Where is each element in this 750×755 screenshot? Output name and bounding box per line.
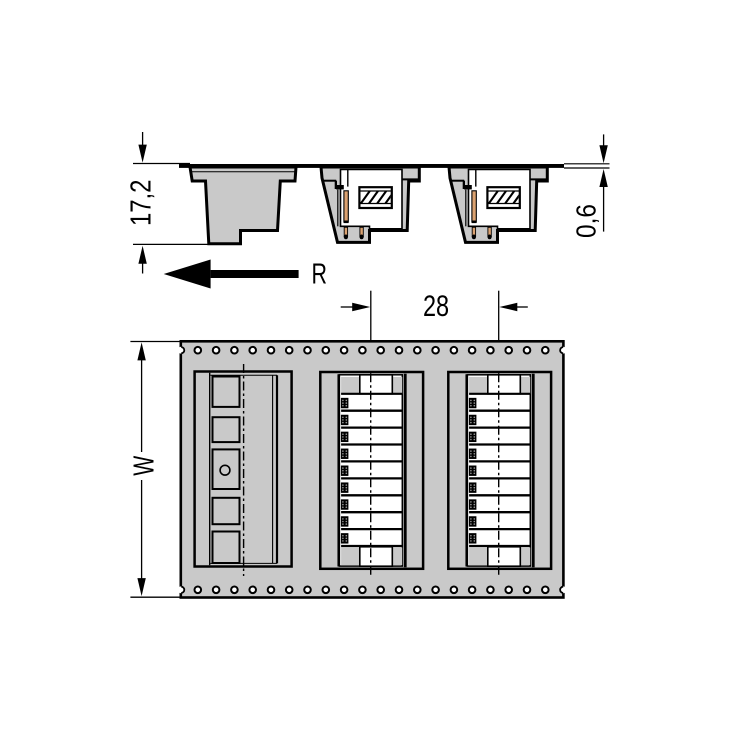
svg-text:R: R bbox=[311, 259, 327, 291]
svg-text:28: 28 bbox=[423, 290, 449, 323]
svg-text:17,2: 17,2 bbox=[126, 180, 158, 227]
svg-text:0,6: 0,6 bbox=[570, 204, 601, 238]
svg-text:W: W bbox=[129, 455, 161, 475]
